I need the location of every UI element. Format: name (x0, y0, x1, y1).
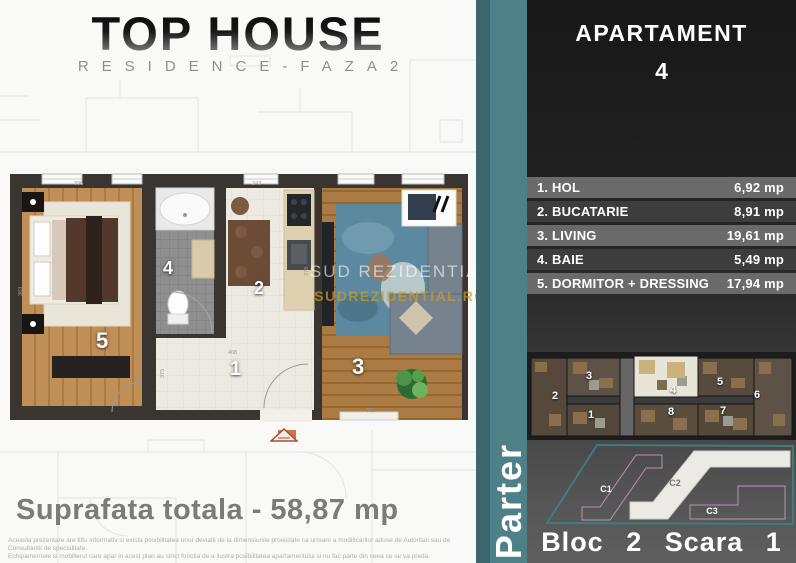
apartment-title: APARTAMENT (527, 20, 796, 47)
toilet (168, 291, 188, 317)
dining-table (228, 220, 270, 286)
room-label: 5. DORMITOR + DRESSING (537, 276, 709, 291)
room-list: 1. HOL 6,92 mp 2. BUCATARIE 8,91 mp 3. L… (527, 177, 796, 297)
overview-unit-4: 4 (670, 384, 676, 396)
disclaimer-line1: Aceasta prezentare are titlu informativ … (8, 537, 460, 553)
room-row-bucatarie: 2. BUCATARIE 8,91 mp (527, 201, 796, 222)
dim-kitchen-top: 243 (252, 181, 261, 187)
building-c3 (690, 486, 785, 519)
site-label-c2: C2 (669, 478, 681, 488)
flyer-page: TOP HOUSE RESIDENCE-FAZA2 (0, 0, 796, 563)
entrance-marker (270, 428, 298, 443)
room-area: 5,49 mp (734, 252, 784, 267)
overview-unit-8: 8 (668, 406, 674, 418)
entrance-door (260, 410, 312, 422)
room-area: 8,91 mp (734, 204, 784, 219)
dim-kitchen-right: 378 (304, 267, 310, 276)
logo-subtitle: RESIDENCE-FAZA2 (13, 58, 476, 75)
overview-unit-7: 7 (720, 405, 726, 417)
dim-bedroom-left: 363 (18, 287, 24, 296)
logo-title: TOP HOUSE (91, 10, 384, 57)
floor-level-label: Parter (488, 443, 530, 559)
dim-hall-height: 375 (160, 369, 166, 378)
site-label-c3: C3 (706, 506, 718, 516)
overview-unit-6: 6 (754, 389, 760, 401)
cooktop (287, 194, 311, 226)
room-area: 17,94 mp (727, 276, 784, 291)
room-number-hall: 1 (230, 358, 241, 381)
vanity (192, 240, 214, 278)
overview-unit-1: 1 (588, 409, 594, 421)
floor-plan-drawing (8, 168, 470, 428)
armchair (231, 197, 249, 215)
logo: TOP HOUSE RESIDENCE-FAZA2 (0, 10, 476, 75)
building-overview: 2 3 4 5 6 1 8 7 (527, 352, 796, 440)
overview-unit-2: 2 (552, 390, 558, 402)
disclaimer: Aceasta prezentare are titlu informativ … (8, 537, 460, 561)
room-number-kitchen: 2 (254, 278, 264, 299)
room-area: 19,61 mp (727, 228, 784, 243)
room-label: 3. LIVING (537, 228, 597, 243)
dim-living-bottom: 312 (366, 408, 375, 414)
room-row-dormitor: 5. DORMITOR + DRESSING 17,94 mp (527, 273, 796, 294)
room-label: 2. BUCATARIE (537, 204, 628, 219)
site-label-c1: C1 (600, 484, 612, 494)
room-number-bedroom: 5 (96, 328, 108, 354)
site-plan: C1 C2 C3 (540, 437, 796, 530)
bloc-scara-label: Bloc 2 Scara 1 (527, 527, 796, 558)
total-area-label: Suprafata totala - 58,87 mp (16, 494, 399, 527)
room-number-bathroom: 4 (163, 258, 173, 279)
stair-core (620, 358, 634, 436)
room-number-living: 3 (352, 354, 364, 380)
dim-hall-width: 408 (228, 350, 237, 356)
overview-unit-5: 5 (717, 376, 723, 388)
disclaimer-line2: Echipamentele si mobilierul care apar in… (8, 553, 460, 561)
wardrobe (52, 356, 130, 378)
overview-unit-3: 3 (586, 370, 592, 382)
room-label: 1. HOL (537, 180, 580, 195)
floor-level-stripe: Parter (490, 0, 527, 563)
room-row-living: 3. LIVING 19,61 mp (527, 225, 796, 246)
apartment-number: 4 (527, 58, 796, 85)
floor-plan: 5 4 2 1 3 335 363 243 378 408 375 312 SU… (8, 168, 470, 428)
room-bedroom (22, 188, 142, 412)
site-plan-drawing (540, 437, 796, 530)
room-label: 4. BAIE (537, 252, 584, 267)
room-row-baie: 4. BAIE 5,49 mp (527, 249, 796, 270)
tv-unit (322, 222, 334, 326)
room-living (322, 188, 462, 420)
right-panel: APARTAMENT 4 1. HOL 6,92 mp 2. BUCATARIE… (527, 0, 796, 563)
room-kitchen (226, 188, 314, 338)
dim-bedroom-top: 335 (74, 181, 83, 187)
room-row-hol: 1. HOL 6,92 mp (527, 177, 796, 198)
left-section: TOP HOUSE RESIDENCE-FAZA2 (0, 0, 476, 563)
room-area: 6,92 mp (734, 180, 784, 195)
